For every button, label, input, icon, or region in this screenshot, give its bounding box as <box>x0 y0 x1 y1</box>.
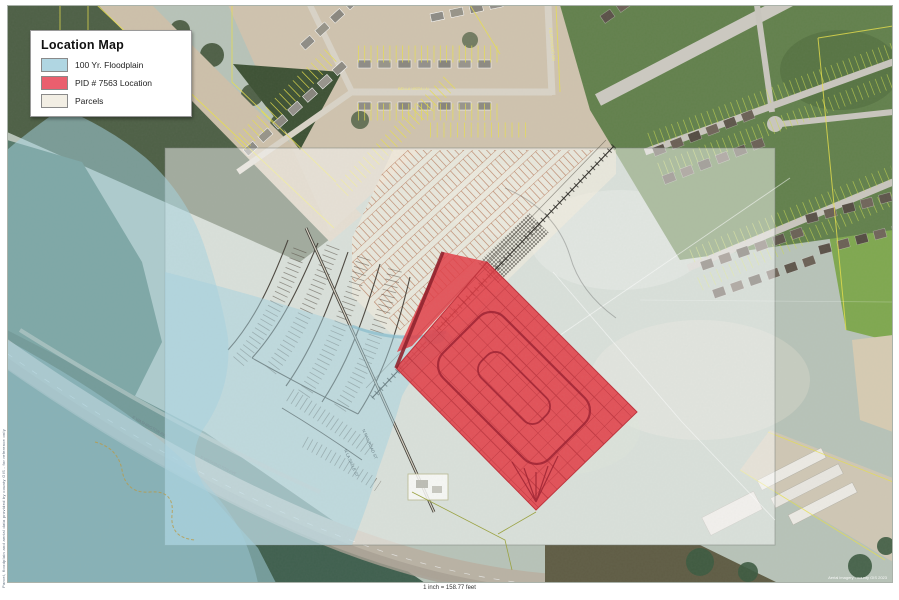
parcels-swatch <box>41 94 68 108</box>
floodplain-swatch <box>41 58 68 72</box>
legend-item-parcels: Parcels <box>41 94 183 108</box>
legend: Location Map 100 Yr. Floodplain PID # 75… <box>30 30 192 117</box>
map-document: BELLA VISTA LN HEARTWOOD DR <box>0 0 899 600</box>
legend-item-floodplain: 100 Yr. Floodplain <box>41 58 183 72</box>
attribution-left: Parcel, floodplain and aerial data provi… <box>1 429 6 588</box>
legend-item-pid-location: PID # 7563 Location <box>41 76 183 90</box>
legend-title: Location Map <box>41 38 183 52</box>
pid-location-swatch <box>41 76 68 90</box>
attribution-right: Aerial imagery - county GIS 2023 <box>828 575 887 580</box>
scale-text: 1 inch = 158.77 feet <box>0 585 899 591</box>
